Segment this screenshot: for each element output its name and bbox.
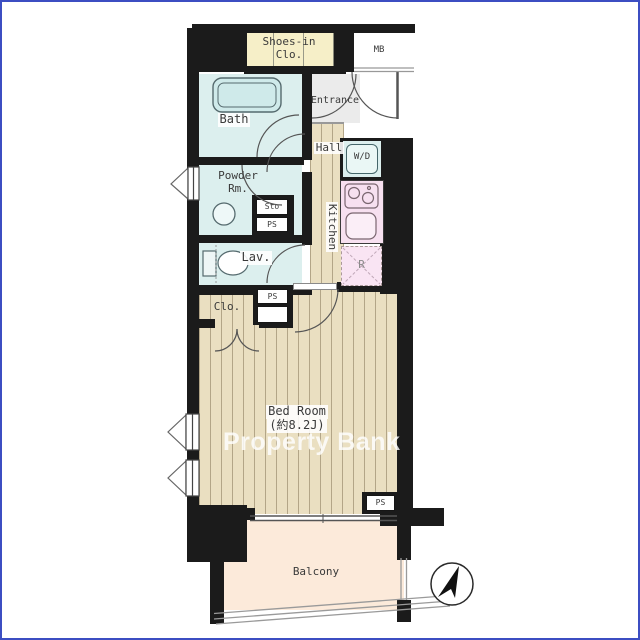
pipe-space-label: PS bbox=[267, 221, 277, 229]
wall-bottom-left-block bbox=[187, 505, 247, 562]
entrance-label: Entrance bbox=[306, 94, 364, 108]
wall-slider-left-jamb bbox=[245, 508, 255, 520]
wall-closet-bottom-left bbox=[199, 319, 215, 328]
pipe-space-box-3: PS bbox=[366, 495, 395, 511]
washer-dryer-label: W/D bbox=[340, 151, 384, 163]
bath-label: Bath bbox=[210, 112, 258, 128]
wall-right bbox=[397, 138, 413, 514]
pipe-space-box-2: PS bbox=[257, 289, 288, 304]
wall-hall-seg1 bbox=[302, 123, 312, 134]
bedroom-window-swing bbox=[168, 415, 186, 449]
storage-box: Sto bbox=[256, 199, 288, 215]
pipe-space-box-1: PS bbox=[256, 217, 288, 232]
shoes-closet-label: Shoes-in Clo. bbox=[244, 33, 334, 65]
bedroom-window-swing bbox=[168, 461, 186, 495]
closet-label: Clo. bbox=[201, 299, 253, 315]
wall-bath-powder bbox=[199, 157, 304, 165]
wall-hall-seg2 bbox=[302, 172, 312, 245]
pipe-space-label: PS bbox=[268, 293, 278, 301]
door-lintel bbox=[293, 283, 337, 290]
corridor-lines bbox=[354, 68, 414, 72]
wall-balcony-right-lower bbox=[397, 600, 411, 622]
lav-label: Lav. bbox=[234, 250, 278, 266]
wall-left bbox=[187, 28, 199, 514]
powder-room-label: Powder Rm. bbox=[201, 169, 275, 197]
balcony-label: Balcony bbox=[280, 564, 352, 580]
kitchen-counter bbox=[340, 180, 384, 244]
compass-icon bbox=[431, 563, 473, 605]
blank-utility-box bbox=[257, 306, 288, 323]
powder-window-swing bbox=[171, 168, 188, 199]
refrigerator-label: R bbox=[341, 257, 382, 273]
pipe-space-label: PS bbox=[376, 499, 386, 507]
kitchen-label: Kitchen bbox=[325, 182, 339, 272]
wall-below-shoes-closet bbox=[244, 66, 346, 74]
entrance-step-line bbox=[310, 122, 344, 124]
wall-top-right bbox=[334, 24, 354, 72]
meter-box-label: MB bbox=[362, 44, 396, 56]
floor-plan: Sto PS PS PS bbox=[0, 0, 640, 640]
watermark: Property Bank bbox=[223, 428, 423, 457]
wall-balcony-left bbox=[210, 558, 224, 624]
wall-balcony-right-upper bbox=[397, 526, 411, 560]
wall-top-left-block bbox=[192, 24, 247, 72]
storage-label: Sto bbox=[265, 203, 279, 211]
